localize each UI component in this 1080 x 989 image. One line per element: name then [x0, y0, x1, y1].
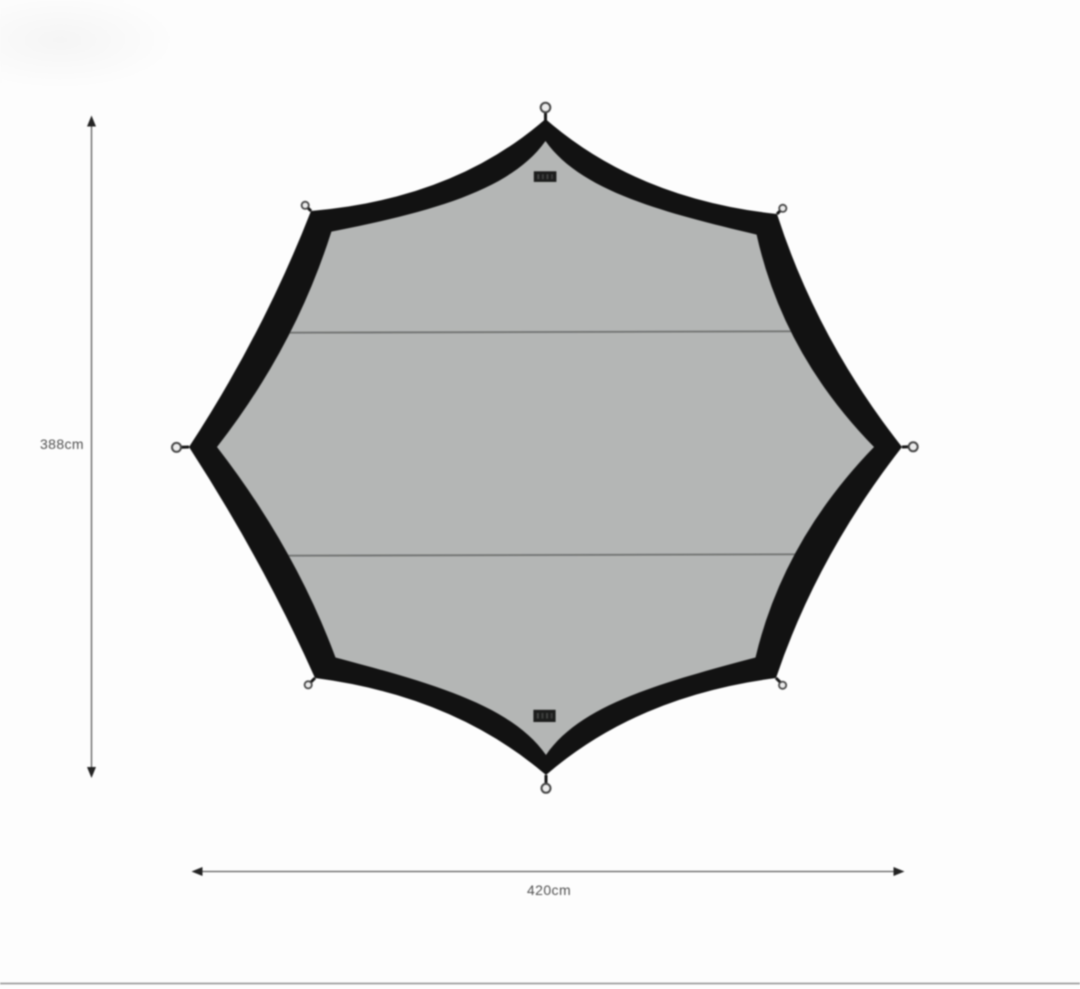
- svg-text:420cm: 420cm: [527, 882, 571, 898]
- svg-text:388cm: 388cm: [40, 436, 84, 452]
